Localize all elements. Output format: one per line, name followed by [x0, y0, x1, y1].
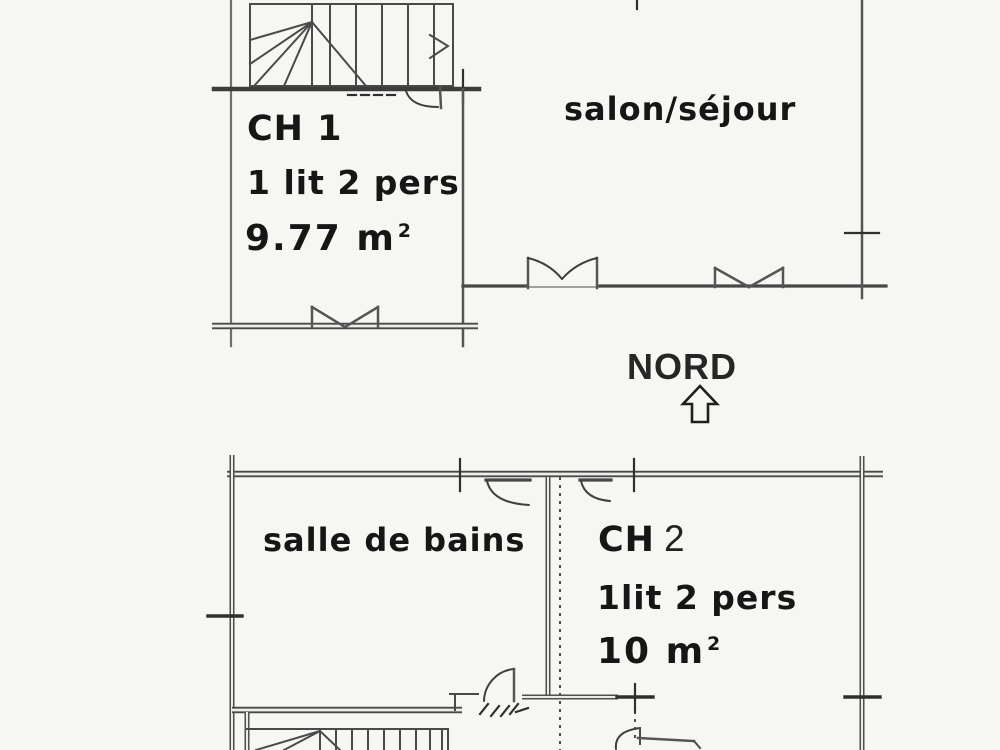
bathroom-room-label: salle de bains	[263, 524, 525, 556]
salon-room-label: salon/séjour	[564, 93, 796, 125]
superscript: 2	[707, 634, 722, 655]
floorplan-drawing	[0, 0, 1000, 750]
ch2-bed-label: 1lit 2 pers	[597, 581, 797, 614]
ch2-room-number: 2	[664, 518, 686, 559]
ch2-door-icon	[580, 480, 611, 501]
ch2-area-label: 10 m2	[597, 634, 722, 670]
bathroom-door-icon	[486, 480, 530, 505]
ch1-area-label: 9.77 m2	[245, 221, 413, 257]
stair-door-icon	[616, 728, 700, 749]
superscript: 2	[398, 221, 413, 242]
north-label: NORD	[607, 346, 757, 388]
north-arrow-icon	[683, 386, 717, 422]
ch2-room-label: CH2	[598, 520, 686, 558]
bathroom-lower-door-icon	[480, 669, 528, 716]
salon-window-icon	[715, 268, 783, 287]
floorplan-page: { "compass": { "label": "NORD" }, "upper…	[0, 0, 1000, 750]
ch1-room-label: CH 1	[247, 112, 343, 147]
staircase-lower-icon	[247, 712, 448, 750]
stair-direction-arrow-icon	[430, 35, 448, 58]
salon-double-door-icon	[528, 258, 597, 288]
staircase-upper-icon	[250, 4, 453, 86]
ch1-bed-label: 1 lit 2 pers	[247, 166, 460, 199]
